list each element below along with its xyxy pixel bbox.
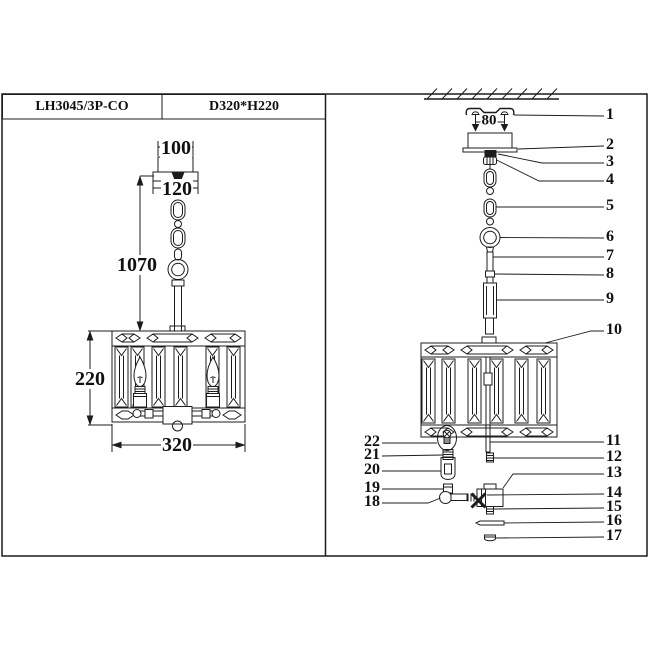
chain-front bbox=[168, 179, 188, 331]
callout-20: 20 bbox=[348, 462, 380, 478]
drawing-canvas: LH3045/3P-CO D320*H220 100 120 1070 220 … bbox=[0, 0, 650, 650]
dim-canopy-base: 120 bbox=[161, 179, 193, 199]
hook-mount bbox=[484, 151, 497, 170]
dim-overall-drop: 1070 bbox=[116, 255, 158, 275]
stem-parts bbox=[480, 228, 500, 344]
callout-11: 11 bbox=[606, 433, 621, 449]
callout-9: 9 bbox=[606, 291, 614, 307]
dim-shade-width: 320 bbox=[161, 435, 193, 455]
dim-shade-height: 220 bbox=[74, 369, 106, 389]
callout-1: 1 bbox=[606, 107, 614, 123]
title-block-size: D320*H220 bbox=[209, 100, 279, 114]
title-block-model: LH3045/3P-CO bbox=[35, 100, 128, 114]
callout-10: 10 bbox=[606, 322, 622, 338]
callout-13: 13 bbox=[606, 465, 622, 481]
bulb-right bbox=[207, 357, 220, 407]
callout-4: 4 bbox=[606, 172, 614, 188]
end-cap bbox=[485, 535, 496, 541]
callout-8: 8 bbox=[606, 266, 614, 282]
callout-6: 6 bbox=[606, 229, 614, 245]
callout-12: 12 bbox=[606, 449, 622, 465]
exploded-view bbox=[382, 89, 604, 541]
dim-screw-spacing: 80 bbox=[481, 114, 498, 129]
canopy-exploded bbox=[463, 133, 517, 152]
callout-18: 18 bbox=[348, 494, 380, 510]
callout-5: 5 bbox=[606, 198, 614, 214]
shade-front bbox=[112, 331, 245, 431]
dim-canopy-top: 100 bbox=[160, 138, 192, 158]
lamp-arms bbox=[133, 407, 220, 432]
callout-2: 2 bbox=[606, 137, 614, 153]
callout-3: 3 bbox=[606, 154, 614, 170]
pin bbox=[476, 521, 504, 525]
threaded-stub bbox=[487, 453, 494, 462]
line-art bbox=[0, 0, 650, 650]
callout-17: 17 bbox=[606, 528, 622, 544]
callout-7: 7 bbox=[606, 248, 614, 264]
shade-exploded bbox=[421, 343, 557, 462]
center-rod bbox=[486, 357, 490, 452]
junction-box bbox=[472, 484, 505, 541]
chain-exploded bbox=[484, 169, 496, 225]
